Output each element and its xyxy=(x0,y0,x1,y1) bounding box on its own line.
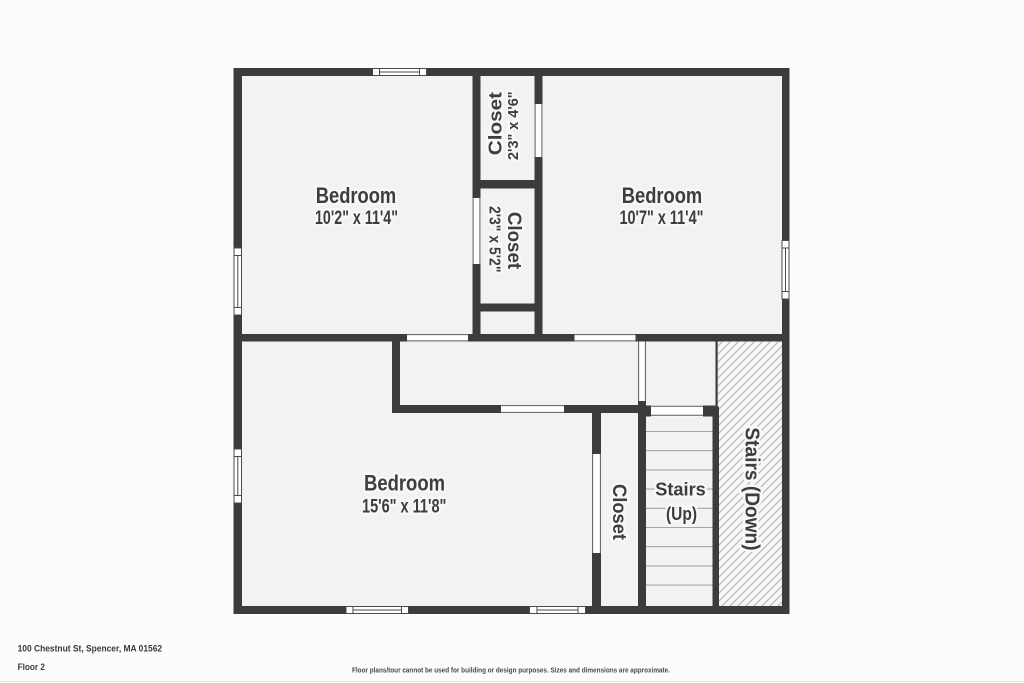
svg-text:(Up): (Up) xyxy=(666,503,697,524)
svg-text:2'3" x 4'6": 2'3" x 4'6" xyxy=(505,91,522,160)
svg-text:10'2" x 11'4": 10'2" x 11'4" xyxy=(315,207,398,229)
svg-text:Closet: Closet xyxy=(486,92,506,155)
svg-text:Stairs (Down): Stairs (Down) xyxy=(740,427,763,550)
svg-text:Closet: Closet xyxy=(608,484,630,540)
svg-text:Bedroom: Bedroom xyxy=(364,471,445,496)
svg-text:15'6" x 11'8": 15'6" x 11'8" xyxy=(362,495,446,517)
svg-text:10'7" x 11'4": 10'7" x 11'4" xyxy=(620,207,704,229)
svg-text:100 Chestnut St, Spencer, MA 0: 100 Chestnut St, Spencer, MA 01562 xyxy=(18,644,163,655)
svg-text:Closet: Closet xyxy=(503,212,525,270)
svg-text:Stairs: Stairs xyxy=(655,479,706,500)
svg-text:Bedroom: Bedroom xyxy=(622,183,703,208)
svg-text:Floor plans/tour cannot be use: Floor plans/tour cannot be used for buil… xyxy=(352,666,670,675)
svg-text:Floor 2: Floor 2 xyxy=(18,662,45,673)
svg-text:Bedroom: Bedroom xyxy=(316,183,397,208)
svg-text:2'3" x 5'2": 2'3" x 5'2" xyxy=(486,206,503,273)
